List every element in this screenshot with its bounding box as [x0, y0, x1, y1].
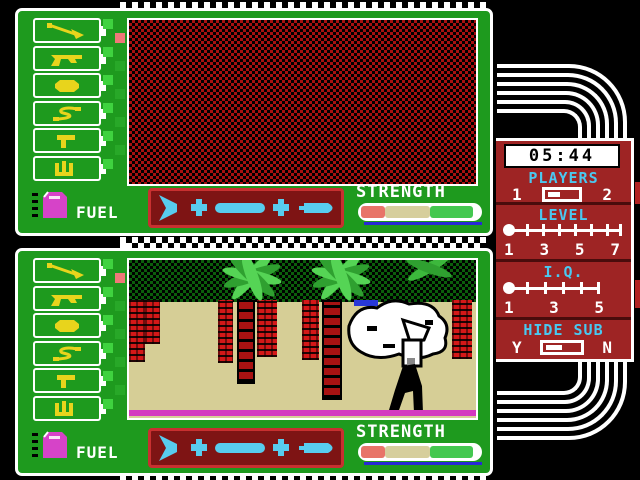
- strength-high-segment: [430, 446, 473, 458]
- sub-nose-icon: [299, 203, 333, 213]
- bezel-mark: [635, 182, 640, 204]
- strength-label: STRENGTH: [356, 422, 446, 442]
- level-label: LEVEL: [496, 206, 631, 224]
- tool-slot-coconut[interactable]: [33, 73, 101, 98]
- sub-connector-icon: [191, 439, 207, 456]
- saw-icon: [45, 160, 89, 178]
- players-toggle-box[interactable]: [542, 187, 582, 202]
- rope-icon: [45, 105, 89, 123]
- tool-slot-shovel[interactable]: [33, 128, 101, 153]
- tool-slot-saw[interactable]: [33, 156, 101, 181]
- shovel-icon: [45, 132, 89, 150]
- bezel-mark: [635, 280, 640, 308]
- sub-hull-icon: [215, 203, 265, 213]
- iq-slider-knob[interactable]: [503, 282, 515, 294]
- fuel-can-icon: [40, 429, 70, 461]
- pistol-icon: [45, 290, 89, 308]
- tool-slot-rope[interactable]: [33, 101, 101, 126]
- pistol-icon: [45, 50, 89, 68]
- slider-tick: [574, 224, 577, 236]
- indicator-light-active: [115, 33, 125, 43]
- indicator-light: [103, 47, 113, 57]
- game-timer: 05:44: [504, 144, 620, 168]
- indicator-light: [103, 131, 113, 141]
- strength-high-segment: [430, 206, 473, 218]
- sub-tail-icon: [159, 195, 177, 221]
- slider-tick: [558, 224, 561, 236]
- strength-bar: [358, 443, 482, 461]
- hide-sub-option-yes[interactable]: Y: [512, 338, 522, 357]
- sub-parts-bar: [148, 188, 344, 228]
- level-tick-3[interactable]: 3: [539, 240, 549, 259]
- tool-slot-rope[interactable]: [33, 341, 101, 366]
- iq-tick-5[interactable]: 5: [594, 298, 604, 317]
- rope-icon: [45, 345, 89, 363]
- level-tick-1[interactable]: 1: [504, 240, 514, 259]
- indicator-light: [115, 329, 125, 339]
- slider-tick: [562, 282, 565, 294]
- hide-sub-option-no[interactable]: N: [602, 338, 612, 357]
- sub-parts-bar: [148, 428, 344, 468]
- sub-parts-icons: [151, 191, 341, 225]
- pickaxe-icon: [45, 22, 89, 40]
- hide-sub-label: HIDE SUB: [496, 321, 631, 339]
- section-divider: [496, 202, 631, 205]
- level-tick-labels: 1 3 5 7: [504, 240, 620, 259]
- player2-panel: FUEL STRENGTH: [15, 248, 493, 476]
- slider-tick: [544, 282, 547, 294]
- level-slider-knob[interactable]: [503, 224, 515, 236]
- hide-sub-selector[interactable]: Y N: [502, 338, 622, 357]
- iq-slider[interactable]: [504, 281, 600, 295]
- strength-label: STRENGTH: [356, 182, 446, 202]
- hide-sub-toggle-box[interactable]: [540, 340, 584, 355]
- indicator-light: [103, 399, 113, 409]
- tool-slot-pistol[interactable]: [33, 286, 101, 311]
- saw-icon: [45, 400, 89, 418]
- level-slider[interactable]: [504, 223, 622, 237]
- section-divider: [496, 259, 631, 262]
- slider-tick: [526, 224, 529, 236]
- game-screen: FUEL STRENGTH: [0, 0, 640, 480]
- tool-slot-coconut[interactable]: [33, 313, 101, 338]
- sub-parts-icons: [151, 431, 341, 465]
- level-tick-7[interactable]: 7: [610, 240, 620, 259]
- sub-connector-icon: [273, 439, 289, 456]
- indicator-light: [103, 75, 113, 85]
- players-selection-mark: [548, 192, 560, 197]
- slider-tick: [580, 282, 583, 294]
- console-arc-decoration: [497, 362, 582, 395]
- coconut-bomb-icon: [45, 77, 89, 95]
- level-slider-track: [504, 229, 622, 232]
- iq-tick-labels: 1 3 5: [504, 298, 604, 317]
- strength-mid-segment: [385, 446, 430, 458]
- strength-bar: [358, 203, 482, 221]
- pickaxe-icon: [45, 262, 89, 280]
- fuel-label: FUEL: [76, 203, 119, 222]
- fuel-label: FUEL: [76, 443, 119, 462]
- player2-viewport: [127, 258, 478, 420]
- strength-low-segment: [361, 206, 385, 218]
- indicator-light: [103, 287, 113, 297]
- indicator-light: [115, 145, 125, 155]
- indicator-light: [115, 61, 125, 71]
- coconut-bomb-icon: [45, 317, 89, 335]
- strength-underline: [364, 222, 482, 225]
- indicator-light: [103, 315, 113, 325]
- tool-slot-pickaxe[interactable]: [33, 18, 101, 43]
- strength-low-segment: [361, 446, 385, 458]
- tool-indicator-lights: [103, 19, 127, 169]
- indicator-light: [115, 89, 125, 99]
- tool-slot-saw[interactable]: [33, 396, 101, 421]
- iq-tick-1[interactable]: 1: [504, 298, 514, 317]
- player1-viewport: [127, 18, 478, 186]
- fuel-gauge-ticks: [32, 433, 38, 457]
- indicator-light: [103, 159, 113, 169]
- slider-tick: [619, 224, 622, 236]
- iq-label: I.Q.: [496, 263, 631, 281]
- strength-underline: [364, 462, 482, 465]
- sub-hull-icon: [215, 443, 265, 453]
- indicator-light: [103, 343, 113, 353]
- sub-connector-icon: [273, 199, 289, 216]
- ground-line: [129, 410, 476, 416]
- white-spy-sprite: [347, 296, 452, 416]
- indicator-light: [103, 19, 113, 29]
- iq-slider-track: [504, 287, 600, 290]
- strength-mid-segment: [385, 206, 430, 218]
- tool-indicator-lights: [103, 259, 127, 409]
- slider-tick: [542, 224, 545, 236]
- trapulator-console: 05:44 PLAYERS 1 2 LEVEL 1 3 5 7: [496, 138, 634, 362]
- tool-slot-pickaxe[interactable]: [33, 258, 101, 283]
- sub-tail-icon: [159, 435, 177, 461]
- tool-slot-pistol[interactable]: [33, 46, 101, 71]
- indicator-light: [103, 371, 113, 381]
- indicator-light: [115, 357, 125, 367]
- fuel-can-icon: [40, 189, 70, 221]
- sub-connector-icon: [191, 199, 207, 216]
- iq-tick-3[interactable]: 3: [549, 298, 559, 317]
- level-tick-5[interactable]: 5: [575, 240, 585, 259]
- indicator-light: [103, 103, 113, 113]
- slider-tick: [590, 224, 593, 236]
- indicator-light: [103, 259, 113, 269]
- indicator-light: [115, 117, 125, 127]
- indicator-light: [115, 301, 125, 311]
- shovel-icon: [45, 372, 89, 390]
- indicator-light: [115, 385, 125, 395]
- slider-tick: [606, 224, 609, 236]
- slider-tick: [526, 282, 529, 294]
- slider-tick: [597, 282, 600, 294]
- section-divider: [496, 317, 631, 320]
- fuel-gauge-ticks: [32, 193, 38, 217]
- player1-panel: FUEL STRENGTH: [15, 8, 493, 236]
- hide-sub-selection-mark: [546, 345, 562, 350]
- tool-slot-shovel[interactable]: [33, 368, 101, 393]
- indicator-light-active: [115, 273, 125, 283]
- sub-nose-icon: [299, 443, 333, 453]
